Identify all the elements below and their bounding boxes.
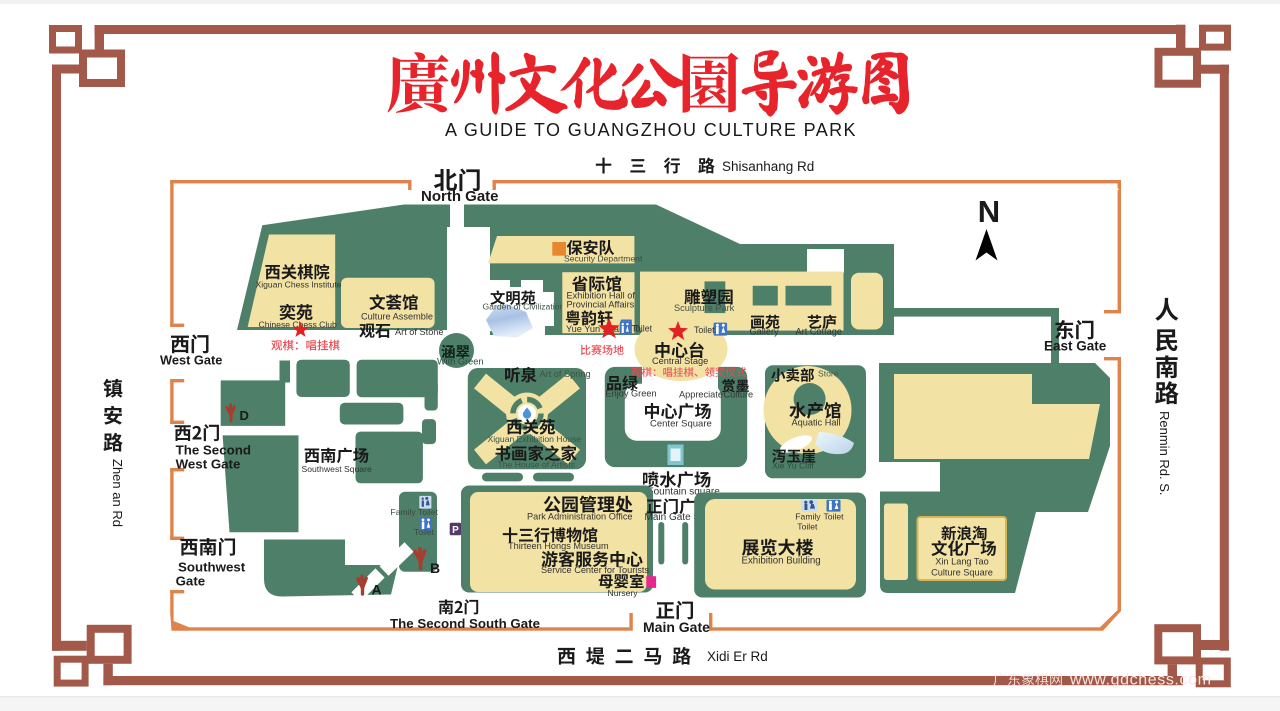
svg-text:B: B bbox=[430, 560, 440, 576]
svg-text:Appreciate: Appreciate bbox=[679, 390, 723, 400]
svg-text:West Gate: West Gate bbox=[160, 353, 222, 368]
svg-text:Sculpture Park: Sculpture Park bbox=[674, 303, 735, 313]
svg-text:D: D bbox=[240, 408, 249, 423]
svg-text:Southwest Square: Southwest Square bbox=[302, 464, 372, 474]
svg-text:Art Cottage: Art Cottage bbox=[796, 327, 842, 337]
svg-text:Xiguan Exhibition House: Xiguan Exhibition House bbox=[488, 434, 582, 444]
svg-text:Service Center for Tourists: Service Center for Tourists bbox=[541, 565, 649, 575]
svg-text:N: N bbox=[978, 194, 1000, 229]
svg-text:Family Toilet: Family Toilet bbox=[390, 507, 438, 517]
svg-text:Art of Spring: Art of Spring bbox=[540, 369, 591, 379]
svg-text:Central Stage: Central Stage bbox=[652, 356, 708, 366]
svg-text:Aquatic Hall: Aquatic Hall bbox=[792, 418, 841, 428]
svg-text:The Second: The Second bbox=[176, 443, 251, 458]
svg-text:Toilet: Toilet bbox=[694, 325, 715, 335]
svg-text:Toilet: Toilet bbox=[632, 324, 653, 334]
svg-text:The Second South Gate: The Second South Gate bbox=[390, 616, 540, 631]
svg-text:Security Department: Security Department bbox=[564, 254, 643, 264]
svg-text:Xiguan Chess Institute: Xiguan Chess Institute bbox=[256, 280, 342, 290]
svg-text:Main Gate: Main Gate bbox=[643, 619, 710, 635]
svg-text:Toilet: Toilet bbox=[824, 512, 845, 522]
svg-text:Exhibition Building: Exhibition Building bbox=[742, 556, 821, 567]
svg-text:Xin Lang Tao: Xin Lang Tao bbox=[935, 557, 988, 567]
svg-text:Garden of Civilization: Garden of Civilization bbox=[483, 302, 565, 312]
svg-text:Xie Yu Cliff: Xie Yu Cliff bbox=[772, 461, 814, 471]
svg-text:Toilet: Toilet bbox=[414, 527, 435, 537]
svg-text:Center Square: Center Square bbox=[650, 419, 712, 430]
svg-text:Thirteen Hongs Museum: Thirteen Hongs Museum bbox=[508, 541, 609, 551]
svg-text:Art of Stone: Art of Stone bbox=[395, 327, 444, 337]
svg-text:Xidi Er Rd: Xidi Er Rd bbox=[707, 649, 768, 664]
svg-text:Culture: Culture bbox=[724, 390, 754, 400]
svg-text:West Gate: West Gate bbox=[176, 457, 241, 472]
svg-text:Culture Square: Culture Square bbox=[931, 568, 993, 578]
svg-text:The House of Artists: The House of Artists bbox=[498, 460, 575, 470]
svg-text:Culture Assemble: Culture Assemble bbox=[361, 312, 433, 322]
svg-text:North Gate: North Gate bbox=[421, 188, 499, 205]
svg-text:P: P bbox=[452, 525, 459, 536]
svg-text:Southwest: Southwest bbox=[178, 560, 246, 575]
svg-text:www.gdchess.com: www.gdchess.com bbox=[1069, 672, 1212, 689]
svg-text:Renmin Rd. S.: Renmin Rd. S. bbox=[1157, 411, 1172, 496]
svg-text:Provincial Affairs: Provincial Affairs bbox=[567, 300, 635, 310]
svg-text:Shisanhang Rd: Shisanhang Rd bbox=[722, 159, 814, 174]
svg-text:A: A bbox=[372, 582, 382, 598]
svg-text:Store: Store bbox=[818, 369, 839, 379]
svg-text:Gate: Gate bbox=[176, 574, 206, 589]
svg-text:Family: Family bbox=[795, 512, 821, 522]
svg-text:With Green: With Green bbox=[437, 357, 483, 367]
svg-text:Park Administration Office: Park Administration Office bbox=[527, 512, 633, 522]
svg-text:East Gate: East Gate bbox=[1044, 339, 1107, 354]
svg-text:Gallery: Gallery bbox=[750, 327, 780, 337]
svg-text:Enjoy Green: Enjoy Green bbox=[606, 389, 657, 399]
svg-text:A GUIDE TO GUANGZHOU CULTU: A GUIDE TO GUANGZHOU CULTURE PARK bbox=[445, 120, 857, 140]
svg-text:Toilet: Toilet bbox=[797, 522, 818, 532]
svg-text:Nursery: Nursery bbox=[608, 588, 639, 598]
svg-text:Zhen an Rd: Zhen an Rd bbox=[110, 459, 125, 527]
